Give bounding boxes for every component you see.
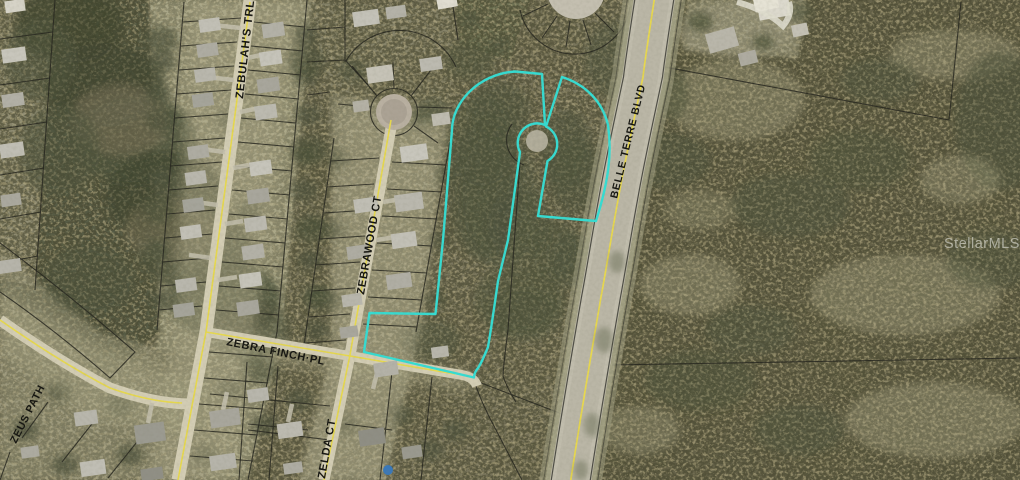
svg-text:StellarMLS: StellarMLS xyxy=(944,236,1020,252)
